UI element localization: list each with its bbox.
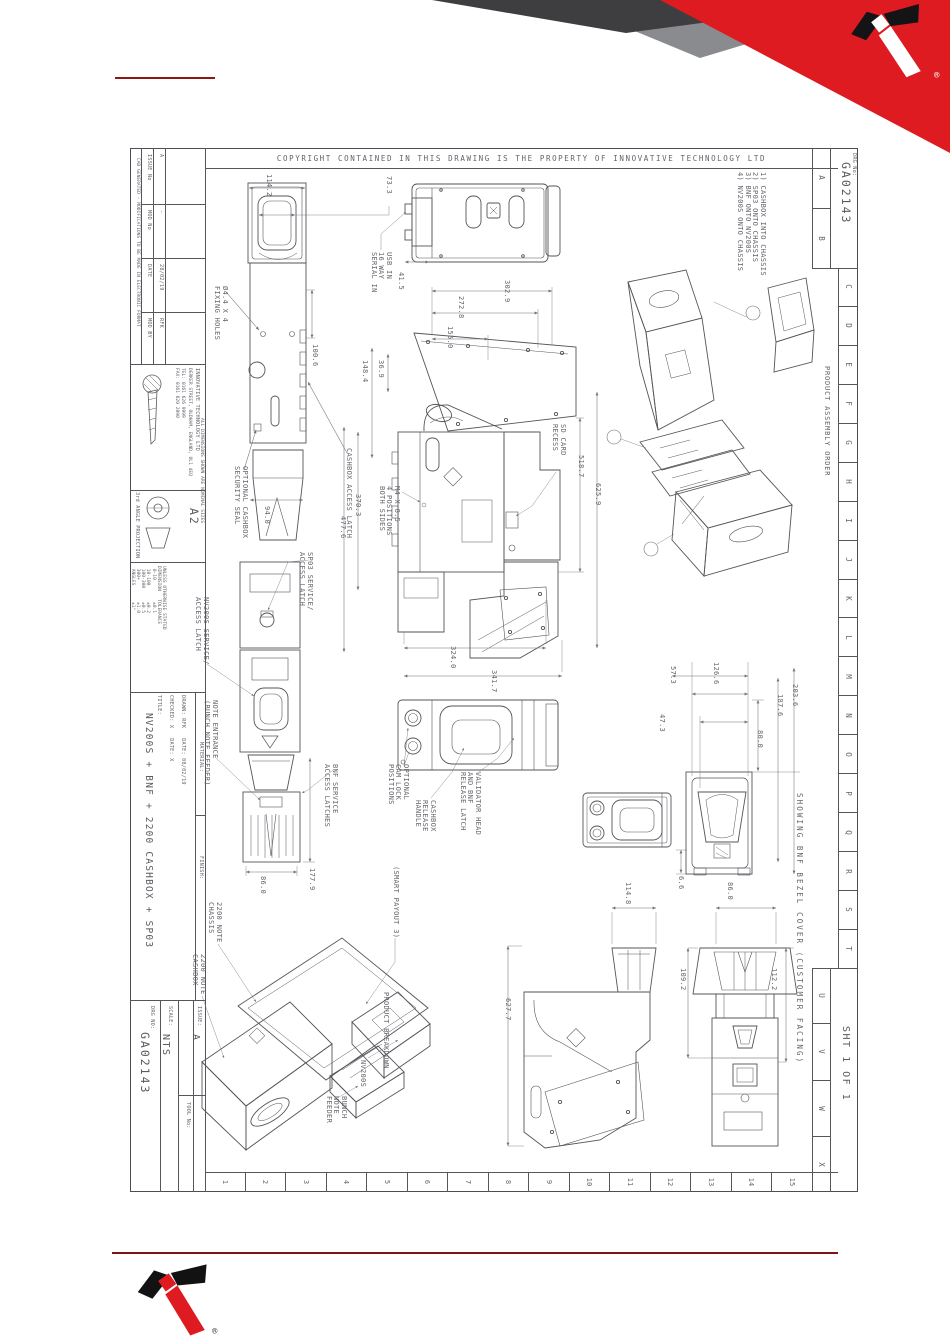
label-cam-lock: OPTIONAL CAM LOCK POSITIONS [386,764,409,805]
view-bottom-bezel [583,772,752,875]
footer-rule [112,1252,838,1254]
label-2200-cashbox: 2200 NOTE CASHBOX [191,954,206,995]
label-product-breakdown: PRODUCT BREAKDOWN [381,992,389,1069]
dim-112-2: 112.2 [769,968,777,991]
label-2200-chassis: 2200 NOTE CHASSIS [207,902,222,943]
view-bottom [398,700,558,770]
dim-36-9: 36.9 [376,360,384,378]
third-angle-projection-icon [146,497,170,548]
label-nv200s: NV200S [358,1060,366,1087]
dim-518-7: 518.7 [576,455,584,478]
dim-203-6: 203.6 [790,684,798,707]
balloon-icon [746,306,760,320]
dims-side-assembled [508,908,656,1146]
view-cashbox-top [248,183,306,540]
dim-627-7: 627.7 [503,998,511,1021]
dim-177-9: 177.9 [307,868,315,891]
dim-109-2: 109.2 [678,968,686,991]
dim-477-6: 477.6 [338,516,346,539]
label-bnf-latches: BNF SERVICE ACCESS LATCHES [323,764,338,827]
registered-mark-icon: ® [212,1327,218,1337]
dim-324-0: 324.0 [448,646,456,669]
balloon-icon [607,430,621,444]
assembly-balloons [607,302,760,556]
assembly-notes: 1) CASHBOX INTO CHASSIS 2) SP03 ONTO CHA… [736,172,766,276]
dim-114-2: 114.2 [264,174,272,197]
footer-itl-logo-icon: ® [130,1260,240,1344]
label-nv200s-latch: NV200S SERVICE/ ACCESS LATCH [194,597,209,665]
label-m4-positions: M4 X 8.5 4 POSITIONS BOTH SIDES [377,486,400,536]
dims-front [207,560,333,876]
view-product-breakdown [202,938,430,1150]
dim-370-3: 370.3 [353,494,361,517]
label-sd-card: SD CARD RECESS [551,424,566,456]
dim-272-8: 272.8 [456,296,464,319]
dim-41-5: 41.5 [396,272,404,290]
label-fixing-holes: Ø4.4 X 4 FIXING HOLES [213,286,228,340]
view-side-assembled [524,948,656,1148]
dim-47-3: 47.3 [657,714,665,732]
drawing-page: { "colors": { "accent_red": "#dd1b21", "… [0,0,950,1344]
dim-86-0b: 86.0 [725,882,733,900]
dim-6-6: 6.6 [676,876,684,890]
balloon-icon [644,542,658,556]
label-cashbox-release: CASHBOX RELEASE HANDLE [413,800,436,832]
label-bnf: BUNCH NOTE FEEDER [324,1096,347,1123]
dim-94-0: 94.0 [262,506,270,524]
leaders-product-breakdown [202,944,398,1097]
dim-341-7: 341.7 [489,670,497,693]
label-sp03-latch: SP03 SERVICE/ ACCESS LATCH [298,552,313,611]
dim-126-6: 126.6 [711,662,719,685]
dim-100-6: 100.6 [310,344,318,367]
dim-57-3: 57.3 [668,666,676,684]
view-front [240,562,300,862]
label-showing-bnf: SHOWING BNF BEZEL COVER (CUSTOMER FACING… [795,793,803,1064]
dim-114-8: 114.8 [623,882,631,905]
view-assembly-exploded [628,270,814,576]
dim-80-0: 80.0 [755,730,763,748]
label-optional-seal: OPTIONAL CASHBOX SECURITY SEAL [233,466,248,538]
drawing-views [0,0,950,1344]
label-assembly-order: PRODUCT ASSEMBLY ORDER [822,366,830,476]
dim-302-9: 302.9 [502,280,510,303]
dim-73-3: 73.3 [384,176,392,194]
dim-187-6: 187.6 [775,694,783,717]
dim-148-4: 148.4 [360,360,368,383]
itl-screw-icon [143,375,161,444]
dim-625-9: 625.9 [593,483,601,506]
view-side-elevation [392,333,576,658]
dim-155-0: 155.0 [445,326,453,349]
label-validator-head: VALIDATOR HEAD AND BNF RELEASE LATCH [458,772,481,835]
label-smart-payout: (SMART PAYOUT 3) [391,866,399,938]
dim-86-0: 86.0 [258,876,266,894]
label-usb-serial: USB IN 16 WAY SERIAL IN [369,252,392,293]
view-front-assembled [693,948,797,1146]
label-note-entrance: NOTE ENTRANCE (BUNCH NOTE FEEDER) [203,700,218,786]
view-validator-top [405,184,560,262]
